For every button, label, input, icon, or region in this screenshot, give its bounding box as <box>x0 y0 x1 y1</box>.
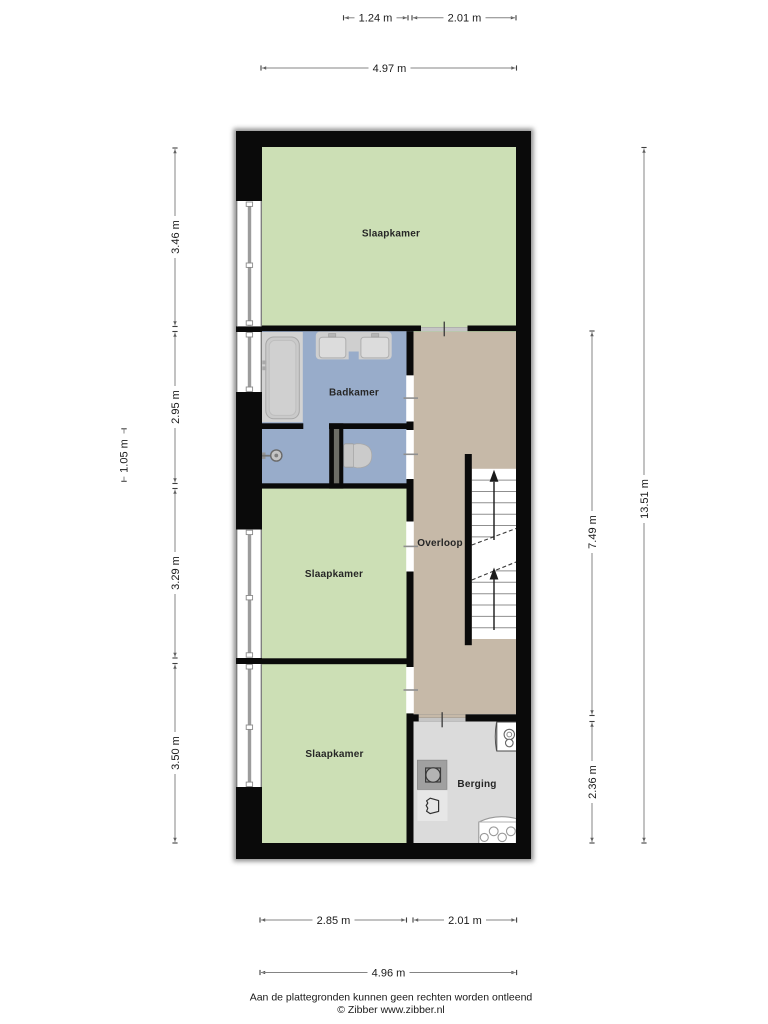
svg-text:3.46 m: 3.46 m <box>170 220 182 254</box>
svg-text:© Zibber www.zibber.nl: © Zibber www.zibber.nl <box>337 1004 445 1016</box>
svg-text:Berging: Berging <box>457 779 496 790</box>
svg-text:1.05 m: 1.05 m <box>119 439 131 473</box>
svg-text:2.01 m: 2.01 m <box>448 915 482 927</box>
svg-text:4.96 m: 4.96 m <box>372 967 406 979</box>
svg-text:13.51 m: 13.51 m <box>639 479 651 519</box>
svg-text:1.24 m: 1.24 m <box>359 13 393 25</box>
svg-text:7.49 m: 7.49 m <box>587 515 599 549</box>
svg-text:Slaapkamer: Slaapkamer <box>305 569 363 580</box>
svg-text:3.29 m: 3.29 m <box>170 556 182 590</box>
svg-text:Badkamer: Badkamer <box>329 388 379 399</box>
svg-text:Slaapkamer: Slaapkamer <box>362 229 420 240</box>
svg-text:2.85 m: 2.85 m <box>317 915 351 927</box>
svg-text:Aan de plattegronden kunnen ge: Aan de plattegronden kunnen geen rechten… <box>250 992 533 1004</box>
svg-text:3.50 m: 3.50 m <box>170 736 182 770</box>
svg-text:2.95 m: 2.95 m <box>170 390 182 424</box>
svg-text:2.01 m: 2.01 m <box>448 13 482 25</box>
svg-text:Overloop: Overloop <box>417 538 463 549</box>
svg-text:Slaapkamer: Slaapkamer <box>305 749 363 760</box>
svg-text:4.97 m: 4.97 m <box>373 63 407 75</box>
svg-text:2.36 m: 2.36 m <box>587 765 599 799</box>
